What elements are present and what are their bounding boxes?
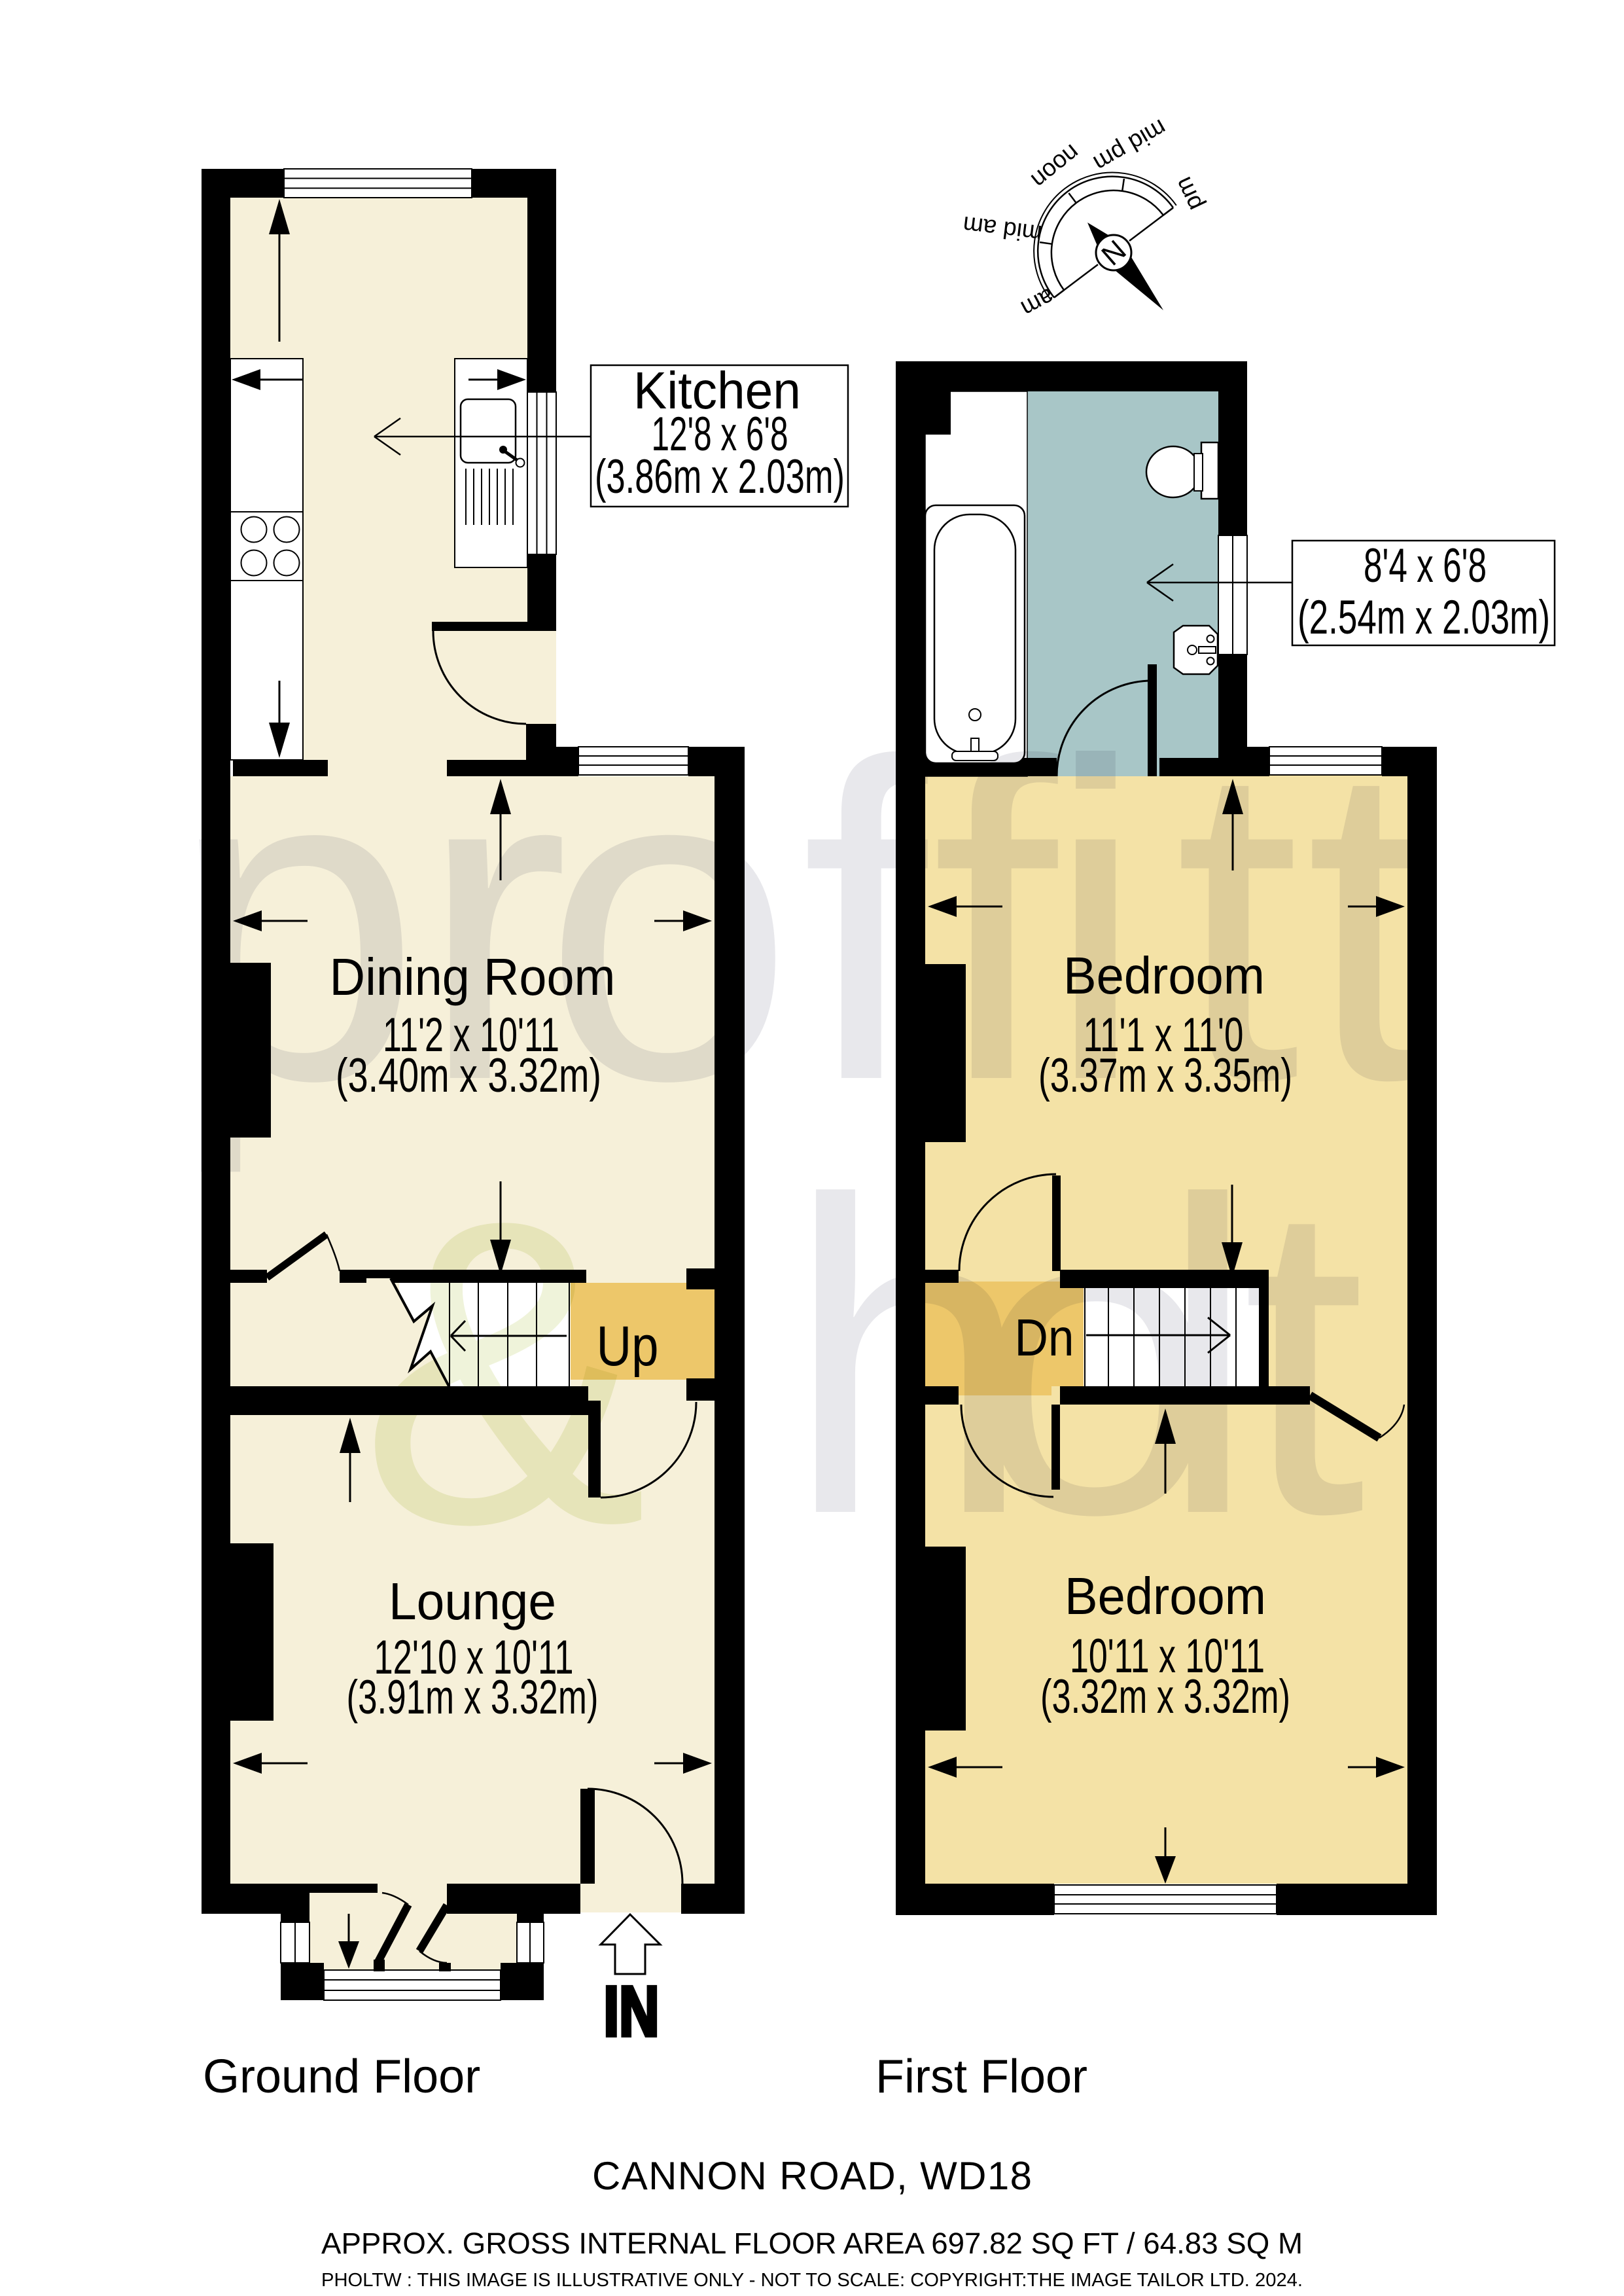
svg-text:IN: IN [604,1971,660,2051]
svg-text:First Floor: First Floor [875,2051,1087,2103]
svg-text:&: & [360,1131,648,1613]
svg-text:PHOLTW : THIS IMAGE IS ILLUSTR: PHOLTW : THIS IMAGE IS ILLUSTRATIVE ONLY… [321,2270,1303,2291]
svg-text:(2.54m x 2.03m): (2.54m x 2.03m) [1297,591,1550,644]
svg-text:proffitt: proffitt [170,670,1432,1177]
svg-text:CANNON ROAD, WD18: CANNON ROAD, WD18 [592,2154,1032,2198]
svg-text:(3.32m x 3.32m): (3.32m x 3.32m) [1040,1670,1290,1723]
svg-text:Ground Floor: Ground Floor [203,2051,480,2103]
svg-text:8'4 x 6'8: 8'4 x 6'8 [1364,539,1487,592]
svg-text:holt: holt [785,1109,1367,1607]
svg-text:APPROX. GROSS INTERNAL FLOOR A: APPROX. GROSS INTERNAL FLOOR AREA 697.82… [321,2227,1303,2260]
svg-text:(3.91m x 3.32m): (3.91m x 3.32m) [347,1671,599,1724]
svg-text:(3.86m x 2.03m): (3.86m x 2.03m) [595,450,845,503]
